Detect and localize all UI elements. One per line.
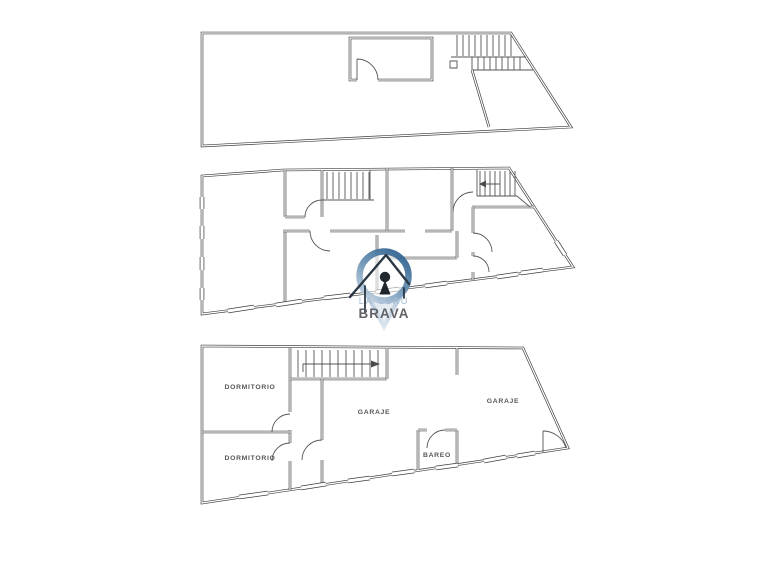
room-label-dormitorio-2: DORMITORIO [224, 455, 275, 462]
plan-top [202, 33, 571, 146]
brand-line2: BRAVA [358, 306, 409, 321]
outer-wall [202, 33, 571, 146]
room-label-dormitorio-1: DORMITORIO [224, 384, 275, 391]
floorplan-sheet: DORMITORIO DORMITORIO GARAJE GARAJE BARE… [0, 0, 768, 576]
floorplan-drawing: DORMITORIO DORMITORIO GARAJE GARAJE BARE… [0, 0, 768, 576]
brand-line1: LA CLAU [359, 296, 409, 306]
room-label-garaje-right: GARAJE [487, 398, 520, 405]
outer-wall [202, 346, 568, 503]
plan-bottom: DORMITORIO DORMITORIO GARAJE GARAJE BARE… [202, 346, 568, 503]
room-label-bareo: BAREO [423, 452, 451, 459]
room-label-garaje-center: GARAJE [358, 409, 391, 416]
